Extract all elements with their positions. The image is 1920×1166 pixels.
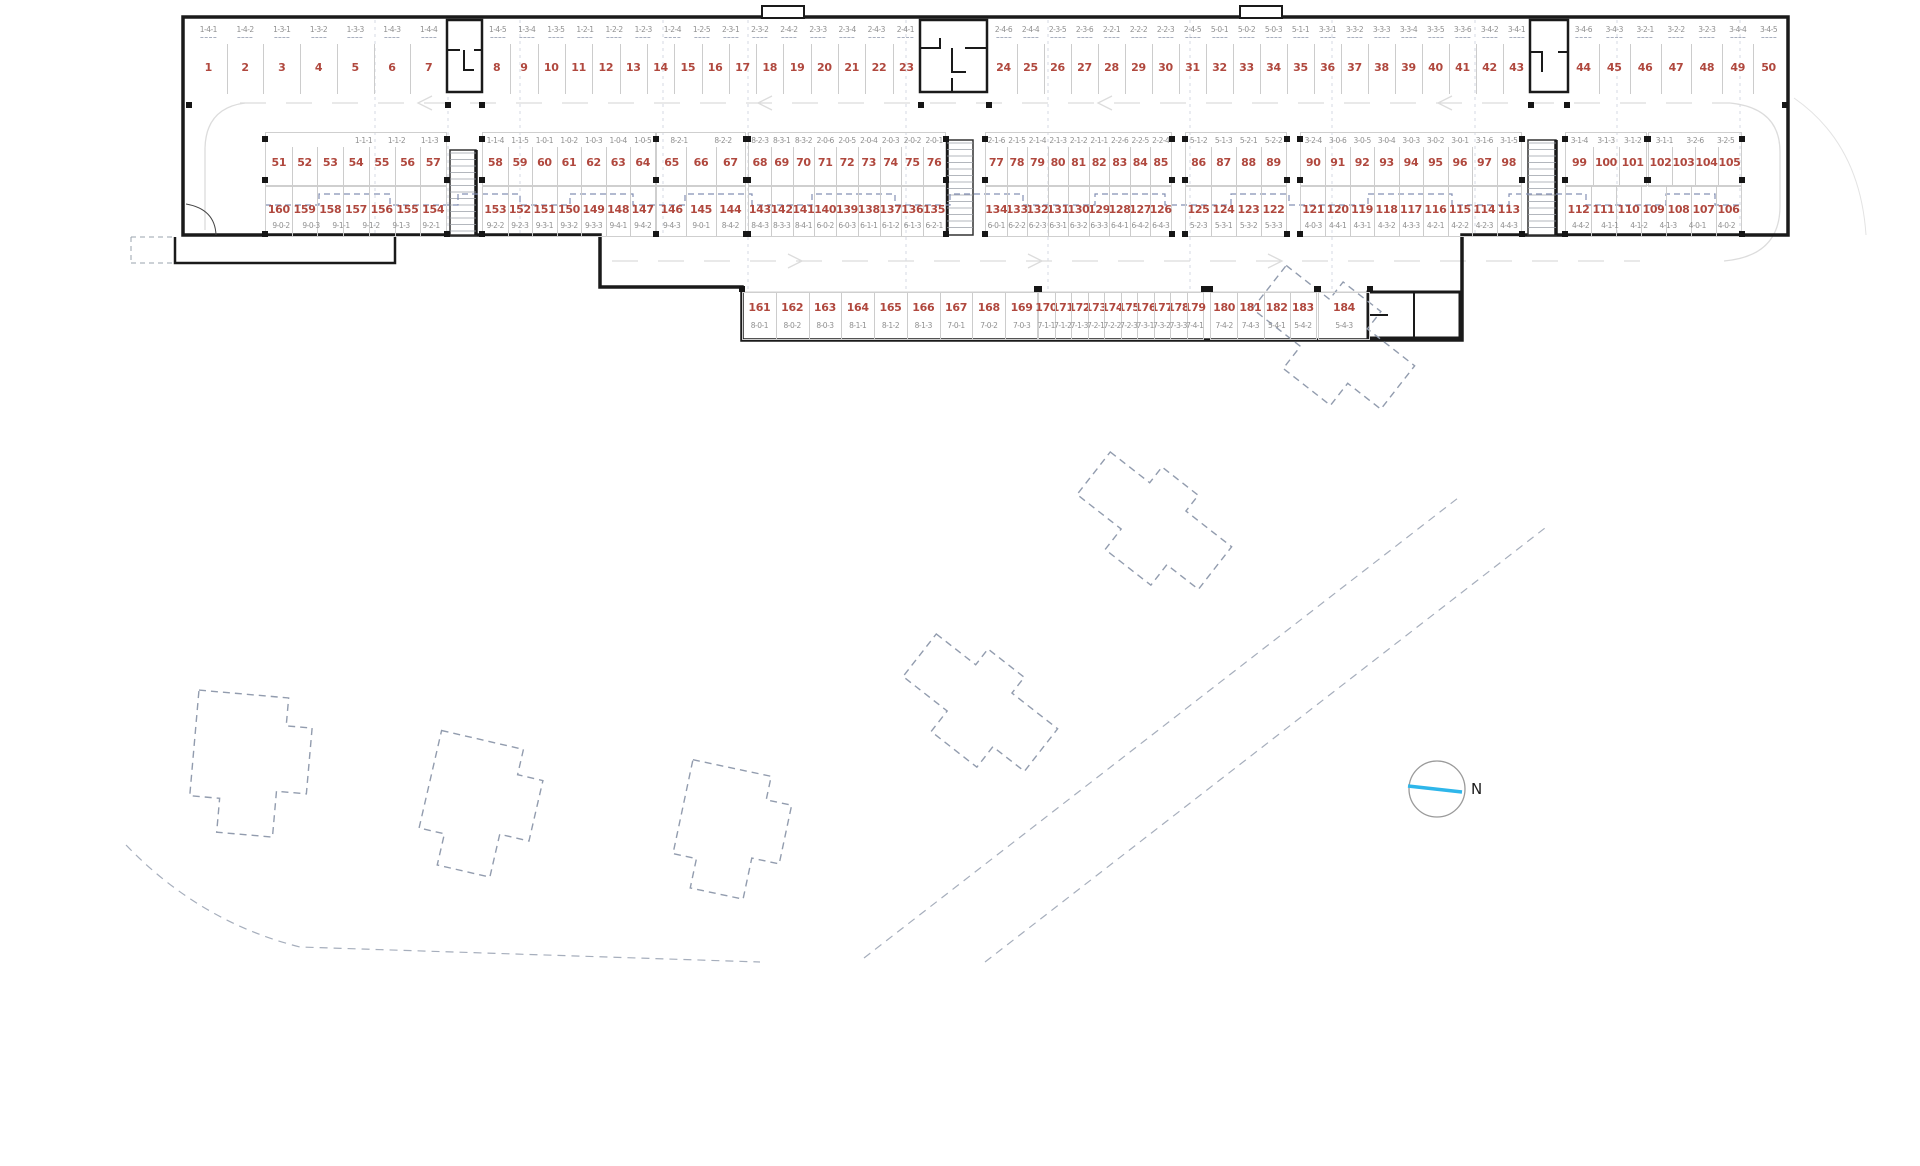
space-number: 70	[796, 157, 811, 168]
unit-code: 5-0-3	[1265, 26, 1282, 34]
unit-code: 6-1-2	[882, 222, 899, 230]
unit-code: 4-2-1	[1427, 222, 1444, 230]
unit-code: 7-0-1	[947, 322, 964, 330]
space-number: 16	[708, 62, 723, 73]
space-number: 138	[858, 204, 880, 215]
space-number: 12	[599, 62, 614, 73]
space-number: 13	[626, 62, 641, 73]
space-number: 149	[583, 204, 605, 215]
space-number: 46	[1638, 62, 1653, 73]
space-number: 147	[632, 204, 654, 215]
space-number: 56	[400, 157, 415, 168]
unit-code: 6-1-3	[904, 222, 921, 230]
column-marker	[444, 231, 450, 237]
space-number: 87	[1216, 157, 1231, 168]
space-number: 126	[1150, 204, 1172, 215]
parking-group: 1601591581571561551549-0-29-0-39-1-19-1-…	[265, 185, 447, 237]
column-marker	[1297, 231, 1303, 237]
column-marker	[1519, 177, 1525, 183]
unit-code: 5-0-1	[1211, 26, 1228, 34]
unit-code: 8-2-3	[751, 137, 768, 145]
unit-code: 2-4-1	[897, 26, 914, 34]
unit-code: 7-3-2	[1153, 322, 1170, 330]
unit-code: 5-4-3	[1335, 322, 1352, 330]
unit-code: 4-3-2	[1378, 222, 1395, 230]
unit-code: 2-1-5	[1008, 137, 1025, 145]
column-marker	[982, 177, 988, 183]
unit-code: 9-0-3	[302, 222, 319, 230]
unit-code: 1-3-3	[347, 26, 364, 34]
space-number: 105	[1718, 157, 1740, 168]
parking-group: 1845-4-3	[1318, 292, 1370, 340]
space-number: 131	[1047, 204, 1069, 215]
space-number: 18	[762, 62, 777, 73]
column-marker	[1284, 177, 1290, 183]
space-number: 62	[586, 157, 601, 168]
unit-code: 4-1-2	[1630, 222, 1647, 230]
parking-spaces-layer: 12345671-4-11-4-21-3-11-3-21-3-31-4-31-4…	[0, 0, 1920, 1166]
column-marker	[1739, 177, 1745, 183]
unit-code: 1-2-1	[576, 26, 593, 34]
space-number: 148	[607, 204, 629, 215]
space-number: 54	[349, 157, 364, 168]
unit-code: 3-1-1	[1656, 137, 1673, 145]
unit-code: 2-1-2	[1070, 137, 1087, 145]
unit-code: 8-3-1	[773, 137, 790, 145]
column-marker	[739, 286, 745, 292]
space-number: 80	[1051, 157, 1066, 168]
parking-group: 868788895-1-25-1-35-2-15-2-2	[1185, 132, 1287, 187]
unit-code: 4-1-3	[1659, 222, 1676, 230]
space-number: 133	[1006, 204, 1028, 215]
space-number: 90	[1306, 157, 1321, 168]
column-marker	[1519, 136, 1525, 142]
unit-code: 2-2-6	[1111, 137, 1128, 145]
space-number: 168	[978, 302, 1000, 313]
space-number: 1	[205, 62, 212, 73]
space-number: 136	[901, 204, 923, 215]
unit-code: 3-3-2	[1346, 26, 1363, 34]
space-number: 9	[520, 62, 527, 73]
parking-group: 1211201191181171161151141134-0-34-4-14-3…	[1300, 185, 1522, 237]
space-number: 128	[1109, 204, 1131, 215]
unit-code: 5-4-1	[1268, 322, 1285, 330]
parking-group: 1251241231225-2-35-3-15-3-25-3-3	[1185, 185, 1287, 237]
space-number: 156	[371, 204, 393, 215]
space-number: 125	[1187, 204, 1209, 215]
column-marker	[943, 231, 949, 237]
column-marker	[918, 102, 924, 108]
parking-group: 1801811821837-4-27-4-35-4-15-4-2	[1210, 292, 1317, 340]
space-number: 99	[1572, 157, 1587, 168]
parking-group: 1531521511501491481479-2-29-2-39-3-19-3-…	[482, 185, 656, 237]
unit-code: 9-4-2	[634, 222, 651, 230]
space-number: 75	[905, 157, 920, 168]
unit-code: 2-2-1	[1103, 26, 1120, 34]
unit-code: 1-2-2	[605, 26, 622, 34]
unit-code: 7-4-1	[1186, 322, 1203, 330]
column-marker	[445, 102, 451, 108]
column-marker	[986, 102, 992, 108]
unit-code: 3-0-5	[1353, 137, 1370, 145]
space-number: 71	[818, 157, 833, 168]
unit-code: 7-1-3	[1071, 322, 1088, 330]
space-number: 167	[945, 302, 967, 313]
column-marker	[479, 136, 485, 142]
space-number: 23	[899, 62, 914, 73]
column-marker	[1564, 102, 1570, 108]
space-number: 47	[1669, 62, 1684, 73]
space-number: 37	[1347, 62, 1362, 73]
space-number: 103	[1672, 157, 1694, 168]
column-marker	[262, 231, 268, 237]
space-number: 22	[872, 62, 887, 73]
column-marker	[1297, 136, 1303, 142]
space-number: 14	[653, 62, 668, 73]
column-marker	[943, 177, 949, 183]
space-number: 116	[1424, 204, 1446, 215]
unit-code: 8-1-1	[849, 322, 866, 330]
parking-group: 444546474849503-4-63-4-33-2-13-2-23-2-33…	[1568, 20, 1784, 94]
unit-code: 2-4-4	[1022, 26, 1039, 34]
space-number: 140	[814, 204, 836, 215]
unit-code: 9-3-2	[560, 222, 577, 230]
unit-code: 1-1-2	[388, 137, 405, 145]
unit-code: 2-2-2	[1130, 26, 1147, 34]
space-number: 98	[1501, 157, 1516, 168]
space-number: 64	[635, 157, 650, 168]
space-number: 29	[1131, 62, 1146, 73]
space-number: 121	[1302, 204, 1324, 215]
space-number: 10	[544, 62, 559, 73]
unit-code: 3-0-4	[1378, 137, 1395, 145]
unit-code: 9-0-1	[692, 222, 709, 230]
unit-code: 5-1-3	[1215, 137, 1232, 145]
column-marker	[1284, 136, 1290, 142]
unit-code: 2-0-1	[925, 137, 942, 145]
parking-group: 6869707172737475768-2-38-3-18-3-22-0-62-…	[748, 132, 946, 187]
unit-code: 1-2-5	[693, 26, 710, 34]
unit-code: 2-3-2	[751, 26, 768, 34]
unit-code: 1-4-1	[200, 26, 217, 34]
space-number: 134	[985, 204, 1007, 215]
parking-group: 1611621631641651661671681698-0-18-0-28-0…	[742, 292, 1039, 340]
space-number: 79	[1030, 157, 1045, 168]
space-number: 145	[690, 204, 712, 215]
space-number: 67	[723, 157, 738, 168]
unit-code: 2-0-2	[904, 137, 921, 145]
space-number: 4	[315, 62, 322, 73]
unit-code: 4-1-1	[1601, 222, 1618, 230]
space-number: 120	[1327, 204, 1349, 215]
column-marker	[982, 231, 988, 237]
space-number: 17	[735, 62, 750, 73]
parking-group: 9091929394959697983-2-43-0-63-0-53-0-43-…	[1300, 132, 1522, 187]
unit-code: 2-4-2	[780, 26, 797, 34]
parking-group: 12345671-4-11-4-21-3-11-3-21-3-31-4-31-4…	[190, 20, 447, 94]
unit-code: 2-1-4	[1029, 137, 1046, 145]
unit-code: 2-3-4	[839, 26, 856, 34]
space-number: 132	[1026, 204, 1048, 215]
unit-code: 2-0-5	[838, 137, 855, 145]
unit-code: 6-4-3	[1152, 222, 1169, 230]
column-marker	[745, 177, 751, 183]
unit-code: 3-3-3	[1373, 26, 1390, 34]
column-marker	[1182, 231, 1188, 237]
space-number: 154	[422, 204, 444, 215]
column-marker	[1645, 177, 1651, 183]
unit-code: 6-4-2	[1132, 222, 1149, 230]
unit-code: 4-4-1	[1329, 222, 1346, 230]
space-number: 78	[1009, 157, 1024, 168]
column-marker	[1034, 286, 1040, 292]
unit-code: 3-4-4	[1729, 26, 1746, 34]
parking-group: 1701711721731741751761771781797-1-17-1-2…	[1037, 292, 1204, 340]
unit-code: 5-1-1	[1292, 26, 1309, 34]
space-number: 102	[1649, 157, 1671, 168]
space-number: 130	[1067, 204, 1089, 215]
space-number: 97	[1477, 157, 1492, 168]
unit-code: 3-2-1	[1637, 26, 1654, 34]
parking-group: 1021031041053-1-13-2-63-2-5	[1648, 132, 1742, 187]
unit-code: 3-2-3	[1698, 26, 1715, 34]
space-number: 107	[1692, 204, 1714, 215]
column-marker	[1739, 231, 1745, 237]
space-number: 41	[1455, 62, 1470, 73]
unit-code: 7-0-3	[1013, 322, 1030, 330]
unit-code: 1-4-4	[420, 26, 437, 34]
unit-code: 1-1-4	[487, 137, 504, 145]
space-number: 122	[1262, 204, 1284, 215]
unit-code: 1-4-2	[236, 26, 253, 34]
unit-code: 1-1-3	[421, 137, 438, 145]
unit-code: 2-1-1	[1090, 137, 1107, 145]
unit-code: 3-1-2	[1624, 137, 1641, 145]
space-number: 82	[1092, 157, 1107, 168]
unit-code: 7-1-2	[1054, 322, 1071, 330]
unit-code: 7-0-2	[980, 322, 997, 330]
unit-code: 3-4-6	[1575, 26, 1592, 34]
column-marker	[653, 177, 659, 183]
unit-code: 8-4-1	[795, 222, 812, 230]
unit-code: 7-2-3	[1120, 322, 1137, 330]
space-number: 139	[836, 204, 858, 215]
unit-code: 1-4-5	[489, 26, 506, 34]
space-number: 73	[861, 157, 876, 168]
space-number: 180	[1213, 302, 1235, 313]
unit-code: 9-0-2	[272, 222, 289, 230]
unit-code: 2-4-5	[1184, 26, 1201, 34]
space-number: 146	[661, 204, 683, 215]
unit-code: 8-1-2	[882, 322, 899, 330]
unit-code: 1-3-4	[518, 26, 535, 34]
space-number: 158	[319, 204, 341, 215]
unit-code: 3-1-4	[1571, 137, 1588, 145]
unit-code: 2-0-4	[860, 137, 877, 145]
parking-group: 1461451449-4-39-0-18-4-2	[656, 185, 746, 237]
space-number: 6	[388, 62, 395, 73]
space-number: 60	[537, 157, 552, 168]
unit-code: 3-2-4	[1305, 137, 1322, 145]
parking-floor-plan: 12345671-4-11-4-21-3-11-3-21-3-31-4-31-4…	[0, 0, 1920, 1166]
unit-code: 9-2-1	[422, 222, 439, 230]
unit-code: 8-2-2	[714, 137, 731, 145]
space-number: 150	[558, 204, 580, 215]
column-marker	[262, 177, 268, 183]
column-marker	[1182, 177, 1188, 183]
space-number: 112	[1567, 204, 1589, 215]
space-number: 15	[680, 62, 695, 73]
unit-code: 6-2-3	[1029, 222, 1046, 230]
unit-code: 1-3-1	[273, 26, 290, 34]
unit-code: 3-1-6	[1476, 137, 1493, 145]
space-number: 184	[1333, 302, 1355, 313]
space-number: 144	[719, 204, 741, 215]
unit-code: 5-2-3	[1190, 222, 1207, 230]
unit-code: 3-0-2	[1427, 137, 1444, 145]
space-number: 181	[1239, 302, 1261, 313]
column-marker	[1207, 286, 1213, 292]
space-number: 7	[425, 62, 432, 73]
unit-code: 5-3-1	[1215, 222, 1232, 230]
space-number: 21	[844, 62, 859, 73]
column-marker	[479, 102, 485, 108]
space-number: 59	[512, 157, 527, 168]
unit-code: 2-1-6	[988, 137, 1005, 145]
unit-code: 2-4-6	[995, 26, 1012, 34]
space-number: 129	[1088, 204, 1110, 215]
space-number: 91	[1330, 157, 1345, 168]
space-number: 135	[923, 204, 945, 215]
space-number: 32	[1212, 62, 1227, 73]
unit-code: 4-4-3	[1500, 222, 1517, 230]
space-number: 2	[241, 62, 248, 73]
space-number: 52	[297, 157, 312, 168]
column-marker	[653, 231, 659, 237]
space-number: 109	[1642, 204, 1664, 215]
space-number: 40	[1428, 62, 1443, 73]
unit-code: 7-1-1	[1038, 322, 1055, 330]
space-number: 65	[664, 157, 679, 168]
parking-group: 2425262728293031323334353637383940414243…	[990, 20, 1530, 94]
column-marker	[1182, 136, 1188, 142]
space-number: 169	[1011, 302, 1033, 313]
unit-code: 1-2-3	[635, 26, 652, 34]
space-number: 159	[294, 204, 316, 215]
parking-group: 585960616263641-1-41-1-51-0-11-0-21-0-31…	[482, 132, 656, 187]
space-number: 8	[493, 62, 500, 73]
unit-code: 4-2-2	[1451, 222, 1468, 230]
column-marker	[1739, 136, 1745, 142]
unit-code: 3-0-3	[1402, 137, 1419, 145]
unit-code: 3-3-6	[1454, 26, 1471, 34]
unit-code: 3-3-5	[1427, 26, 1444, 34]
unit-code: 6-3-1	[1049, 222, 1066, 230]
space-number: 118	[1376, 204, 1398, 215]
unit-code: 4-0-1	[1689, 222, 1706, 230]
space-number: 111	[1592, 204, 1614, 215]
unit-code: 3-2-5	[1717, 137, 1734, 145]
space-number: 94	[1404, 157, 1419, 168]
unit-code: 7-3-3	[1170, 322, 1187, 330]
unit-code: 1-3-5	[547, 26, 564, 34]
unit-code: 2-0-6	[817, 137, 834, 145]
north-label: N	[1471, 780, 1482, 798]
space-number: 161	[748, 302, 770, 313]
space-number: 119	[1351, 204, 1373, 215]
space-number: 153	[484, 204, 506, 215]
parking-group: 8910111213141516171819202122231-4-51-3-4…	[483, 20, 920, 94]
space-number: 160	[268, 204, 290, 215]
column-marker	[1297, 177, 1303, 183]
column-marker	[444, 136, 450, 142]
unit-code: 9-3-1	[536, 222, 553, 230]
unit-code: 9-2-3	[511, 222, 528, 230]
parking-group: 991001013-1-43-1-33-1-2	[1565, 132, 1647, 187]
space-number: 53	[323, 157, 338, 168]
column-marker	[1562, 231, 1568, 237]
space-number: 81	[1071, 157, 1086, 168]
unit-code: 3-4-2	[1481, 26, 1498, 34]
space-number: 108	[1667, 204, 1689, 215]
space-number: 19	[790, 62, 805, 73]
space-number: 44	[1576, 62, 1591, 73]
space-number: 39	[1401, 62, 1416, 73]
unit-code: 8-4-2	[722, 222, 739, 230]
unit-code: 3-1-5	[1500, 137, 1517, 145]
space-number: 5	[352, 62, 359, 73]
unit-code: 1-1-1	[355, 137, 372, 145]
unit-code: 7-2-2	[1104, 322, 1121, 330]
space-number: 68	[753, 157, 768, 168]
unit-code: 6-3-3	[1090, 222, 1107, 230]
column-marker	[1367, 286, 1373, 292]
column-marker	[1169, 231, 1175, 237]
unit-code: 6-0-3	[838, 222, 855, 230]
space-number: 58	[488, 157, 503, 168]
space-number: 92	[1355, 157, 1370, 168]
unit-code: 3-0-1	[1451, 137, 1468, 145]
unit-code: 8-3-2	[795, 137, 812, 145]
unit-code: 5-3-3	[1265, 222, 1282, 230]
space-number: 25	[1023, 62, 1038, 73]
unit-code: 9-4-1	[610, 222, 627, 230]
column-marker	[1169, 136, 1175, 142]
space-number: 110	[1617, 204, 1639, 215]
unit-code: 8-0-3	[816, 322, 833, 330]
space-number: 137	[880, 204, 902, 215]
unit-code: 8-4-3	[751, 222, 768, 230]
space-number: 164	[847, 302, 869, 313]
unit-code: 4-2-3	[1476, 222, 1493, 230]
unit-code: 8-2-1	[670, 137, 687, 145]
space-number: 28	[1104, 62, 1119, 73]
column-marker	[1519, 231, 1525, 237]
unit-code: 1-0-2	[560, 137, 577, 145]
space-number: 72	[840, 157, 855, 168]
space-number: 48	[1699, 62, 1714, 73]
column-marker	[444, 177, 450, 183]
unit-code: 1-4-3	[383, 26, 400, 34]
unit-code: 4-0-2	[1718, 222, 1735, 230]
space-number: 117	[1400, 204, 1422, 215]
space-number: 30	[1158, 62, 1173, 73]
space-number: 74	[883, 157, 898, 168]
space-number: 83	[1112, 157, 1127, 168]
unit-code: 2-3-5	[1049, 26, 1066, 34]
space-number: 163	[814, 302, 836, 313]
unit-code: 6-2-1	[925, 222, 942, 230]
